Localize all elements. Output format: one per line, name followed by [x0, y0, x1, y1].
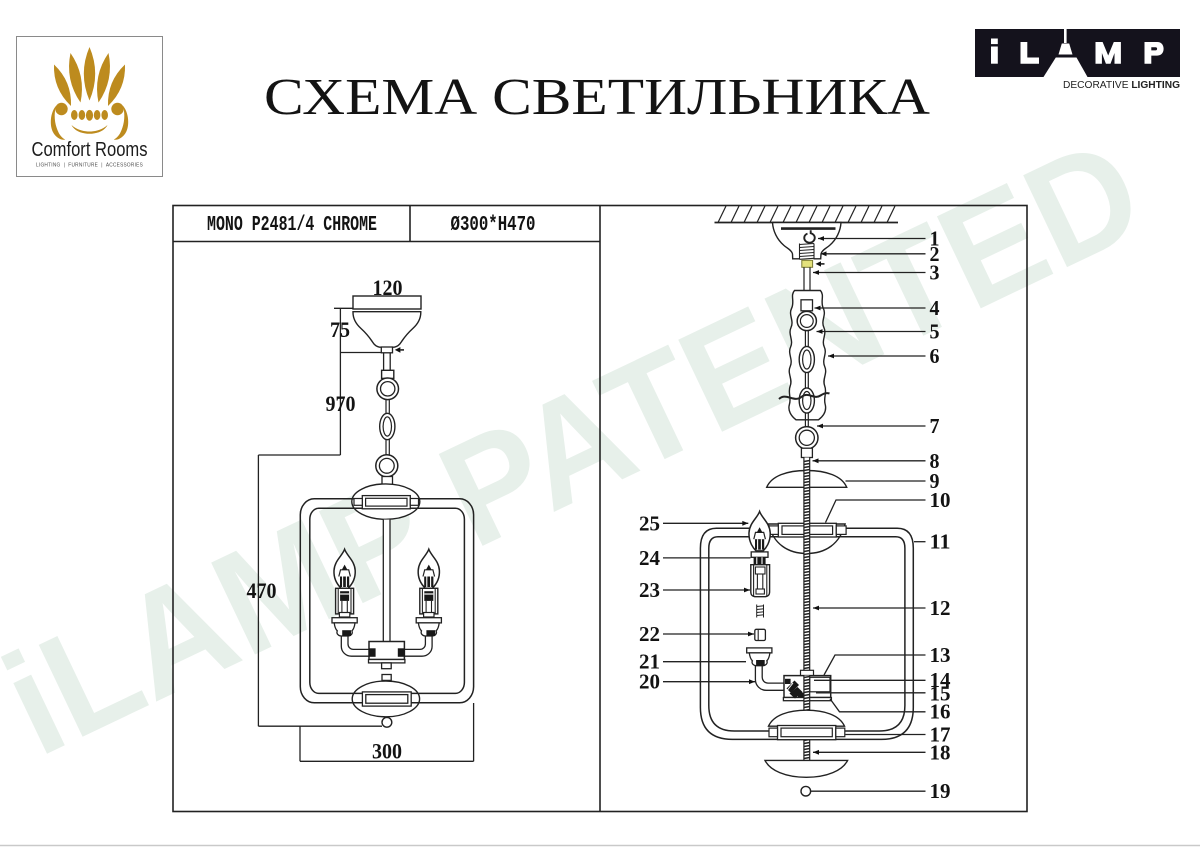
svg-text:5: 5 [930, 320, 940, 344]
svg-text:4: 4 [930, 296, 940, 320]
svg-text:75: 75 [330, 317, 350, 342]
svg-text:11: 11 [930, 530, 951, 554]
svg-text:12: 12 [930, 596, 951, 620]
svg-text:13: 13 [930, 643, 951, 667]
svg-text:970: 970 [326, 391, 356, 416]
svg-text:СХЕМА СВЕТИЛЬНИКА: СХЕМА СВЕТИЛЬНИКА [264, 69, 931, 126]
svg-text:25: 25 [639, 511, 660, 535]
svg-text:19: 19 [930, 779, 951, 803]
svg-text:3: 3 [930, 261, 940, 285]
svg-text:10: 10 [930, 488, 951, 512]
svg-text:23: 23 [639, 578, 660, 602]
svg-text:Comfort Rooms: Comfort Rooms [32, 138, 148, 161]
svg-text:24: 24 [639, 546, 661, 570]
svg-text:DECORATIVE LIGHTING: DECORATIVE LIGHTING [1063, 80, 1180, 91]
svg-text:20: 20 [639, 670, 660, 694]
svg-text:6: 6 [930, 344, 940, 368]
svg-text:300: 300 [372, 739, 402, 764]
svg-text:16: 16 [930, 699, 951, 723]
svg-text:MONO P2481/4 CHROME: MONO P2481/4 CHROME [207, 214, 377, 237]
svg-text:22: 22 [639, 622, 660, 646]
svg-text:18: 18 [930, 740, 951, 764]
svg-text:Ø300*H470: Ø300*H470 [451, 214, 536, 237]
svg-text:7: 7 [930, 414, 940, 438]
svg-text:470: 470 [247, 578, 277, 603]
svg-text:LIGHTING | FURNITURE | ACC: LIGHTING | FURNITURE | ACCESSORIES [36, 163, 143, 169]
